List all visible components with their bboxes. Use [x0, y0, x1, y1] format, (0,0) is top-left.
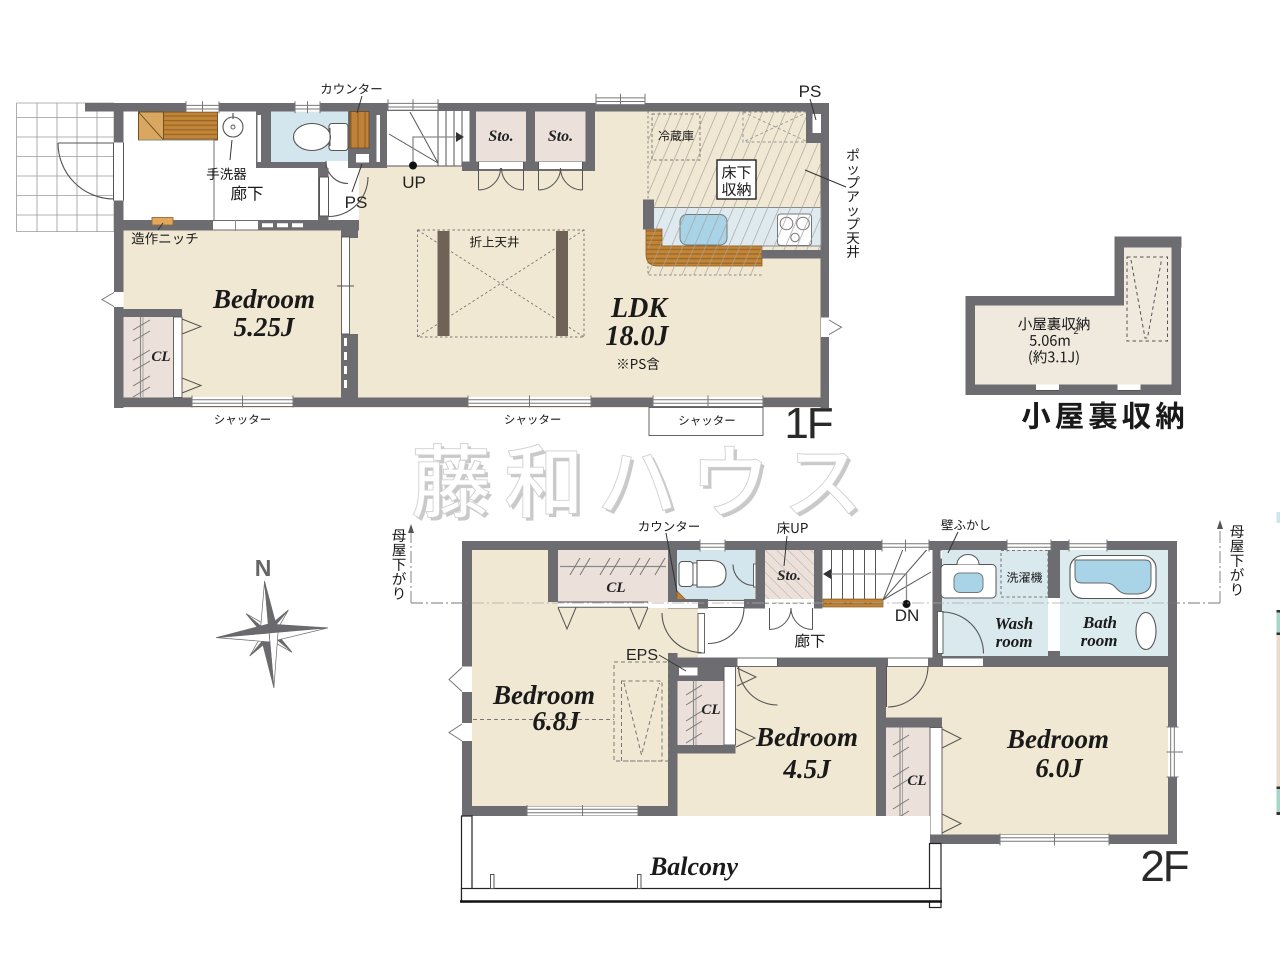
svg-text:Bath: Bath	[1082, 613, 1117, 632]
svg-text:2: 2	[1073, 326, 1078, 336]
svg-text:Balcony: Balcony	[649, 852, 739, 881]
svg-text:Sto.: Sto.	[488, 128, 513, 145]
svg-text:Bedroom: Bedroom	[1006, 724, 1109, 754]
svg-text:Sto.: Sto.	[548, 128, 573, 145]
svg-text:DN: DN	[895, 606, 920, 625]
svg-text:N: N	[255, 555, 272, 581]
svg-text:2F: 2F	[1140, 842, 1188, 891]
svg-text:LDK: LDK	[610, 293, 669, 324]
svg-text:room: room	[1081, 631, 1118, 650]
svg-text:Bedroom: Bedroom	[212, 284, 315, 314]
svg-text:UP: UP	[402, 173, 426, 192]
svg-text:1F: 1F	[784, 399, 832, 448]
svg-text:6.8J: 6.8J	[532, 706, 581, 736]
svg-text:CL: CL	[606, 580, 625, 596]
svg-text:EPS: EPS	[626, 647, 658, 664]
svg-text:Sto.: Sto.	[777, 568, 801, 584]
svg-text:CL: CL	[701, 702, 720, 718]
svg-text:CL: CL	[151, 349, 170, 365]
svg-text:CL: CL	[907, 773, 926, 789]
svg-text:18.0J: 18.0J	[606, 321, 670, 352]
svg-text:4.5J: 4.5J	[782, 754, 832, 784]
svg-text:PS: PS	[345, 193, 368, 212]
svg-text:6.0J: 6.0J	[1035, 753, 1084, 783]
svg-text:5.25J: 5.25J	[234, 312, 296, 342]
svg-text:Wash: Wash	[995, 614, 1033, 633]
svg-text:PS: PS	[799, 82, 822, 101]
svg-text:room: room	[996, 632, 1033, 651]
svg-text:Bedroom: Bedroom	[755, 722, 858, 752]
